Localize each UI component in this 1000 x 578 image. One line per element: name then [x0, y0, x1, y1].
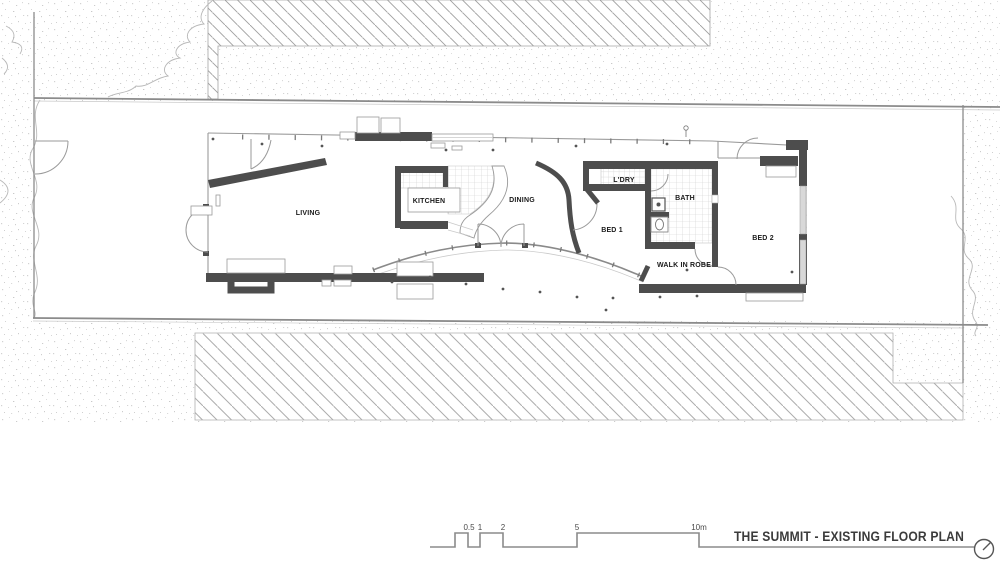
dining-curved-wall [536, 163, 579, 253]
floor-plan-canvas: LIVING KITCHEN DINING L'DRY BED 1 BATH B… [0, 0, 1000, 578]
room-label-living: LIVING [296, 210, 321, 217]
room-label-laundry: L'DRY [613, 177, 635, 184]
room-label-bed2: BED 2 [752, 235, 774, 242]
north-indicator-icon [975, 540, 994, 559]
bed2-wardrobe [766, 166, 796, 177]
wall-tick-marks [242, 137, 804, 282]
room-label-dining: DINING [509, 197, 535, 204]
bed1-door-arc [573, 204, 597, 230]
scale-label-2: 2 [501, 523, 506, 532]
room-label-kitchen: KITCHEN [413, 198, 446, 205]
scale-label-1: 1 [478, 523, 483, 532]
bed2-entry-door-arc [737, 138, 758, 159]
living-feature-wall [208, 158, 327, 188]
gate-arc [35, 141, 68, 174]
fireplace-recess [231, 282, 271, 290]
planter-box [357, 117, 379, 133]
outdoor-bench [397, 262, 433, 276]
bed2-robe-door-arc [718, 267, 736, 285]
plan-title: THE SUMMIT - EXISTING FLOOR PLAN [734, 529, 964, 544]
bed2-window [800, 186, 806, 234]
window-seat [227, 259, 285, 273]
floor-plan-page: LIVING KITCHEN DINING L'DRY BED 1 BATH B… [0, 0, 1000, 578]
scale-label-0-5: 0.5 [463, 523, 475, 532]
bed2-window [800, 240, 806, 284]
scale-label-10m: 10m [691, 523, 707, 532]
building-walls [203, 132, 808, 293]
entry-step [191, 206, 212, 215]
room-label-walk-in-robe: WALK IN ROBE [657, 262, 711, 269]
neighbour-building-hatch-bottom [195, 333, 963, 420]
outdoor-bench [397, 284, 433, 299]
room-label-bath: BATH [675, 195, 695, 202]
planter-box [381, 118, 400, 133]
deck-strip [746, 293, 803, 301]
scale-label-5: 5 [575, 523, 580, 532]
room-label-bed1: BED 1 [601, 227, 623, 234]
